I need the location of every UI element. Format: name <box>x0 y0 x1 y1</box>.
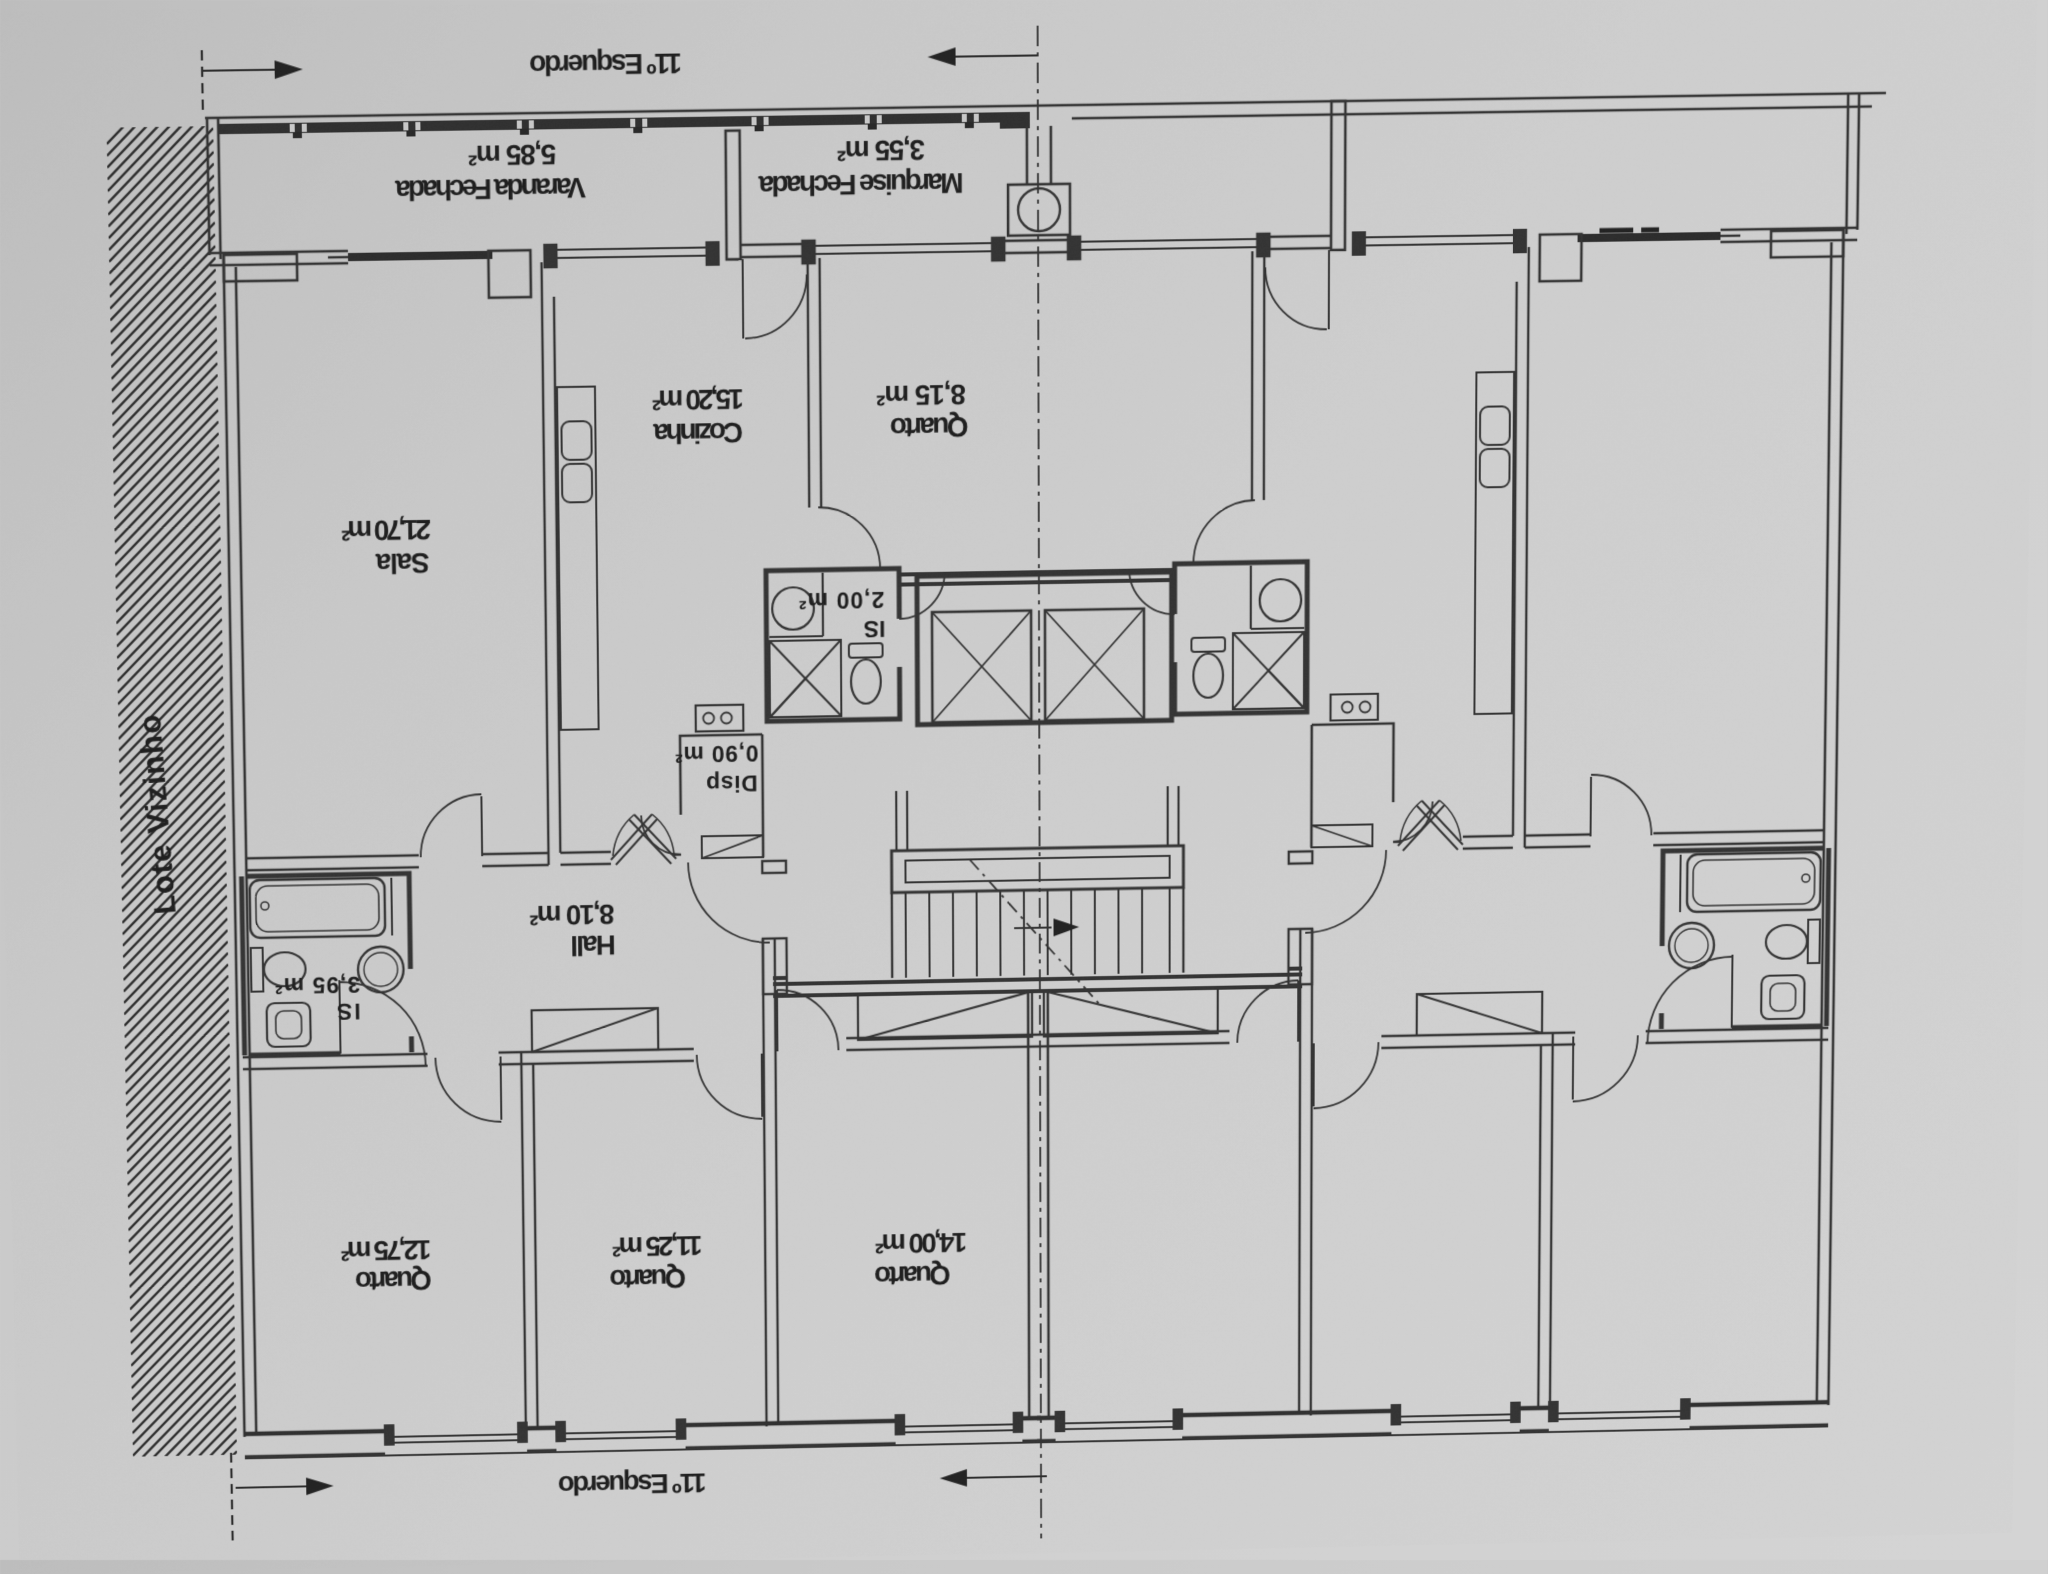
svg-text:8,15 m²: 8,15 m² <box>876 378 966 411</box>
svg-text:Marquise Fechada: Marquise Fechada <box>757 166 963 201</box>
svg-text:0,90 m²: 0,90 m² <box>675 741 759 768</box>
svg-text:Lote Vizinho: Lote Vizinho <box>132 714 183 916</box>
svg-text:Varanda Fechada: Varanda Fechada <box>394 171 586 206</box>
svg-text:15,20 m²: 15,20 m² <box>652 382 744 415</box>
svg-text:Quarto: Quarto <box>355 1264 432 1296</box>
svg-text:2,00 m²: 2,00 m² <box>799 587 885 614</box>
svg-text:14,00 m²: 14,00 m² <box>875 1226 967 1259</box>
svg-text:11º Esquerdo: 11º Esquerdo <box>558 1467 707 1500</box>
svg-text:11,25 m²: 11,25 m² <box>612 1229 703 1262</box>
svg-text:Disp: Disp <box>706 771 758 797</box>
svg-text:Quarto: Quarto <box>874 1259 951 1291</box>
svg-text:12,75 m²: 12,75 m² <box>340 1234 431 1267</box>
svg-text:8,10 m²: 8,10 m² <box>529 898 614 931</box>
svg-text:Sala: Sala <box>374 546 429 579</box>
svg-text:3,55 m²: 3,55 m² <box>837 133 925 166</box>
svg-text:11º Esquerdo: 11º Esquerdo <box>529 46 682 80</box>
svg-text:Cozinha: Cozinha <box>652 416 743 449</box>
svg-text:3,95 m²: 3,95 m² <box>275 972 361 999</box>
svg-text:IS: IS <box>337 999 361 1025</box>
svg-text:Quarto: Quarto <box>609 1262 686 1294</box>
svg-text:21,70 m²: 21,70 m² <box>341 513 431 546</box>
svg-text:Hall: Hall <box>570 929 616 961</box>
svg-text:IS: IS <box>864 616 886 642</box>
svg-text:5,85 m²: 5,85 m² <box>468 138 557 171</box>
svg-text:Quarto: Quarto <box>890 410 969 443</box>
